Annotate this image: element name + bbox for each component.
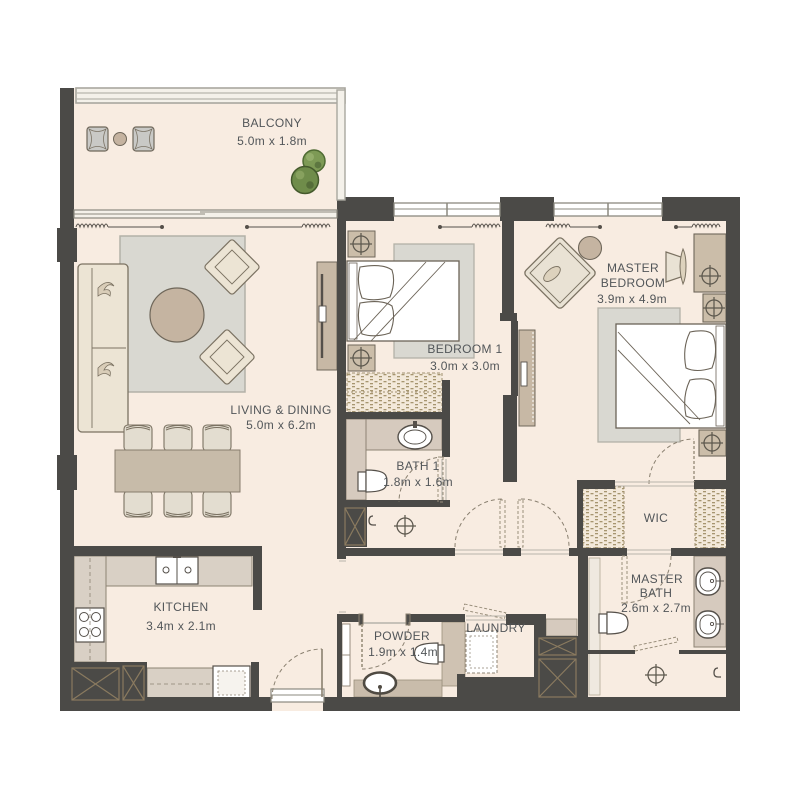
svg-text:WIC: WIC [644, 511, 668, 525]
svg-text:BEDROOM: BEDROOM [601, 276, 665, 290]
svg-text:LIVING & DINING: LIVING & DINING [230, 403, 331, 417]
svg-text:MASTER: MASTER [607, 261, 659, 275]
svg-text:BEDROOM 1: BEDROOM 1 [427, 342, 502, 356]
svg-text:BATH 1: BATH 1 [396, 459, 439, 473]
svg-text:POWDER: POWDER [374, 629, 430, 643]
svg-text:3.9m x 4.9m: 3.9m x 4.9m [597, 292, 667, 306]
svg-text:KITCHEN: KITCHEN [153, 600, 208, 614]
svg-text:5.0m x 1.8m: 5.0m x 1.8m [237, 134, 307, 148]
svg-text:3.0m x 3.0m: 3.0m x 3.0m [430, 359, 500, 373]
svg-text:LAUNDRY: LAUNDRY [466, 621, 526, 635]
svg-text:BATH: BATH [640, 586, 673, 600]
svg-text:1.8m x 1.6m: 1.8m x 1.6m [383, 475, 453, 489]
svg-text:2.6m x 2.7m: 2.6m x 2.7m [621, 601, 691, 615]
svg-text:3.4m x 2.1m: 3.4m x 2.1m [146, 619, 216, 633]
svg-text:MASTER: MASTER [631, 572, 683, 586]
svg-text:BALCONY: BALCONY [242, 116, 302, 130]
svg-text:5.0m x 6.2m: 5.0m x 6.2m [246, 418, 316, 432]
svg-text:1.9m x 1.4m: 1.9m x 1.4m [368, 645, 438, 659]
